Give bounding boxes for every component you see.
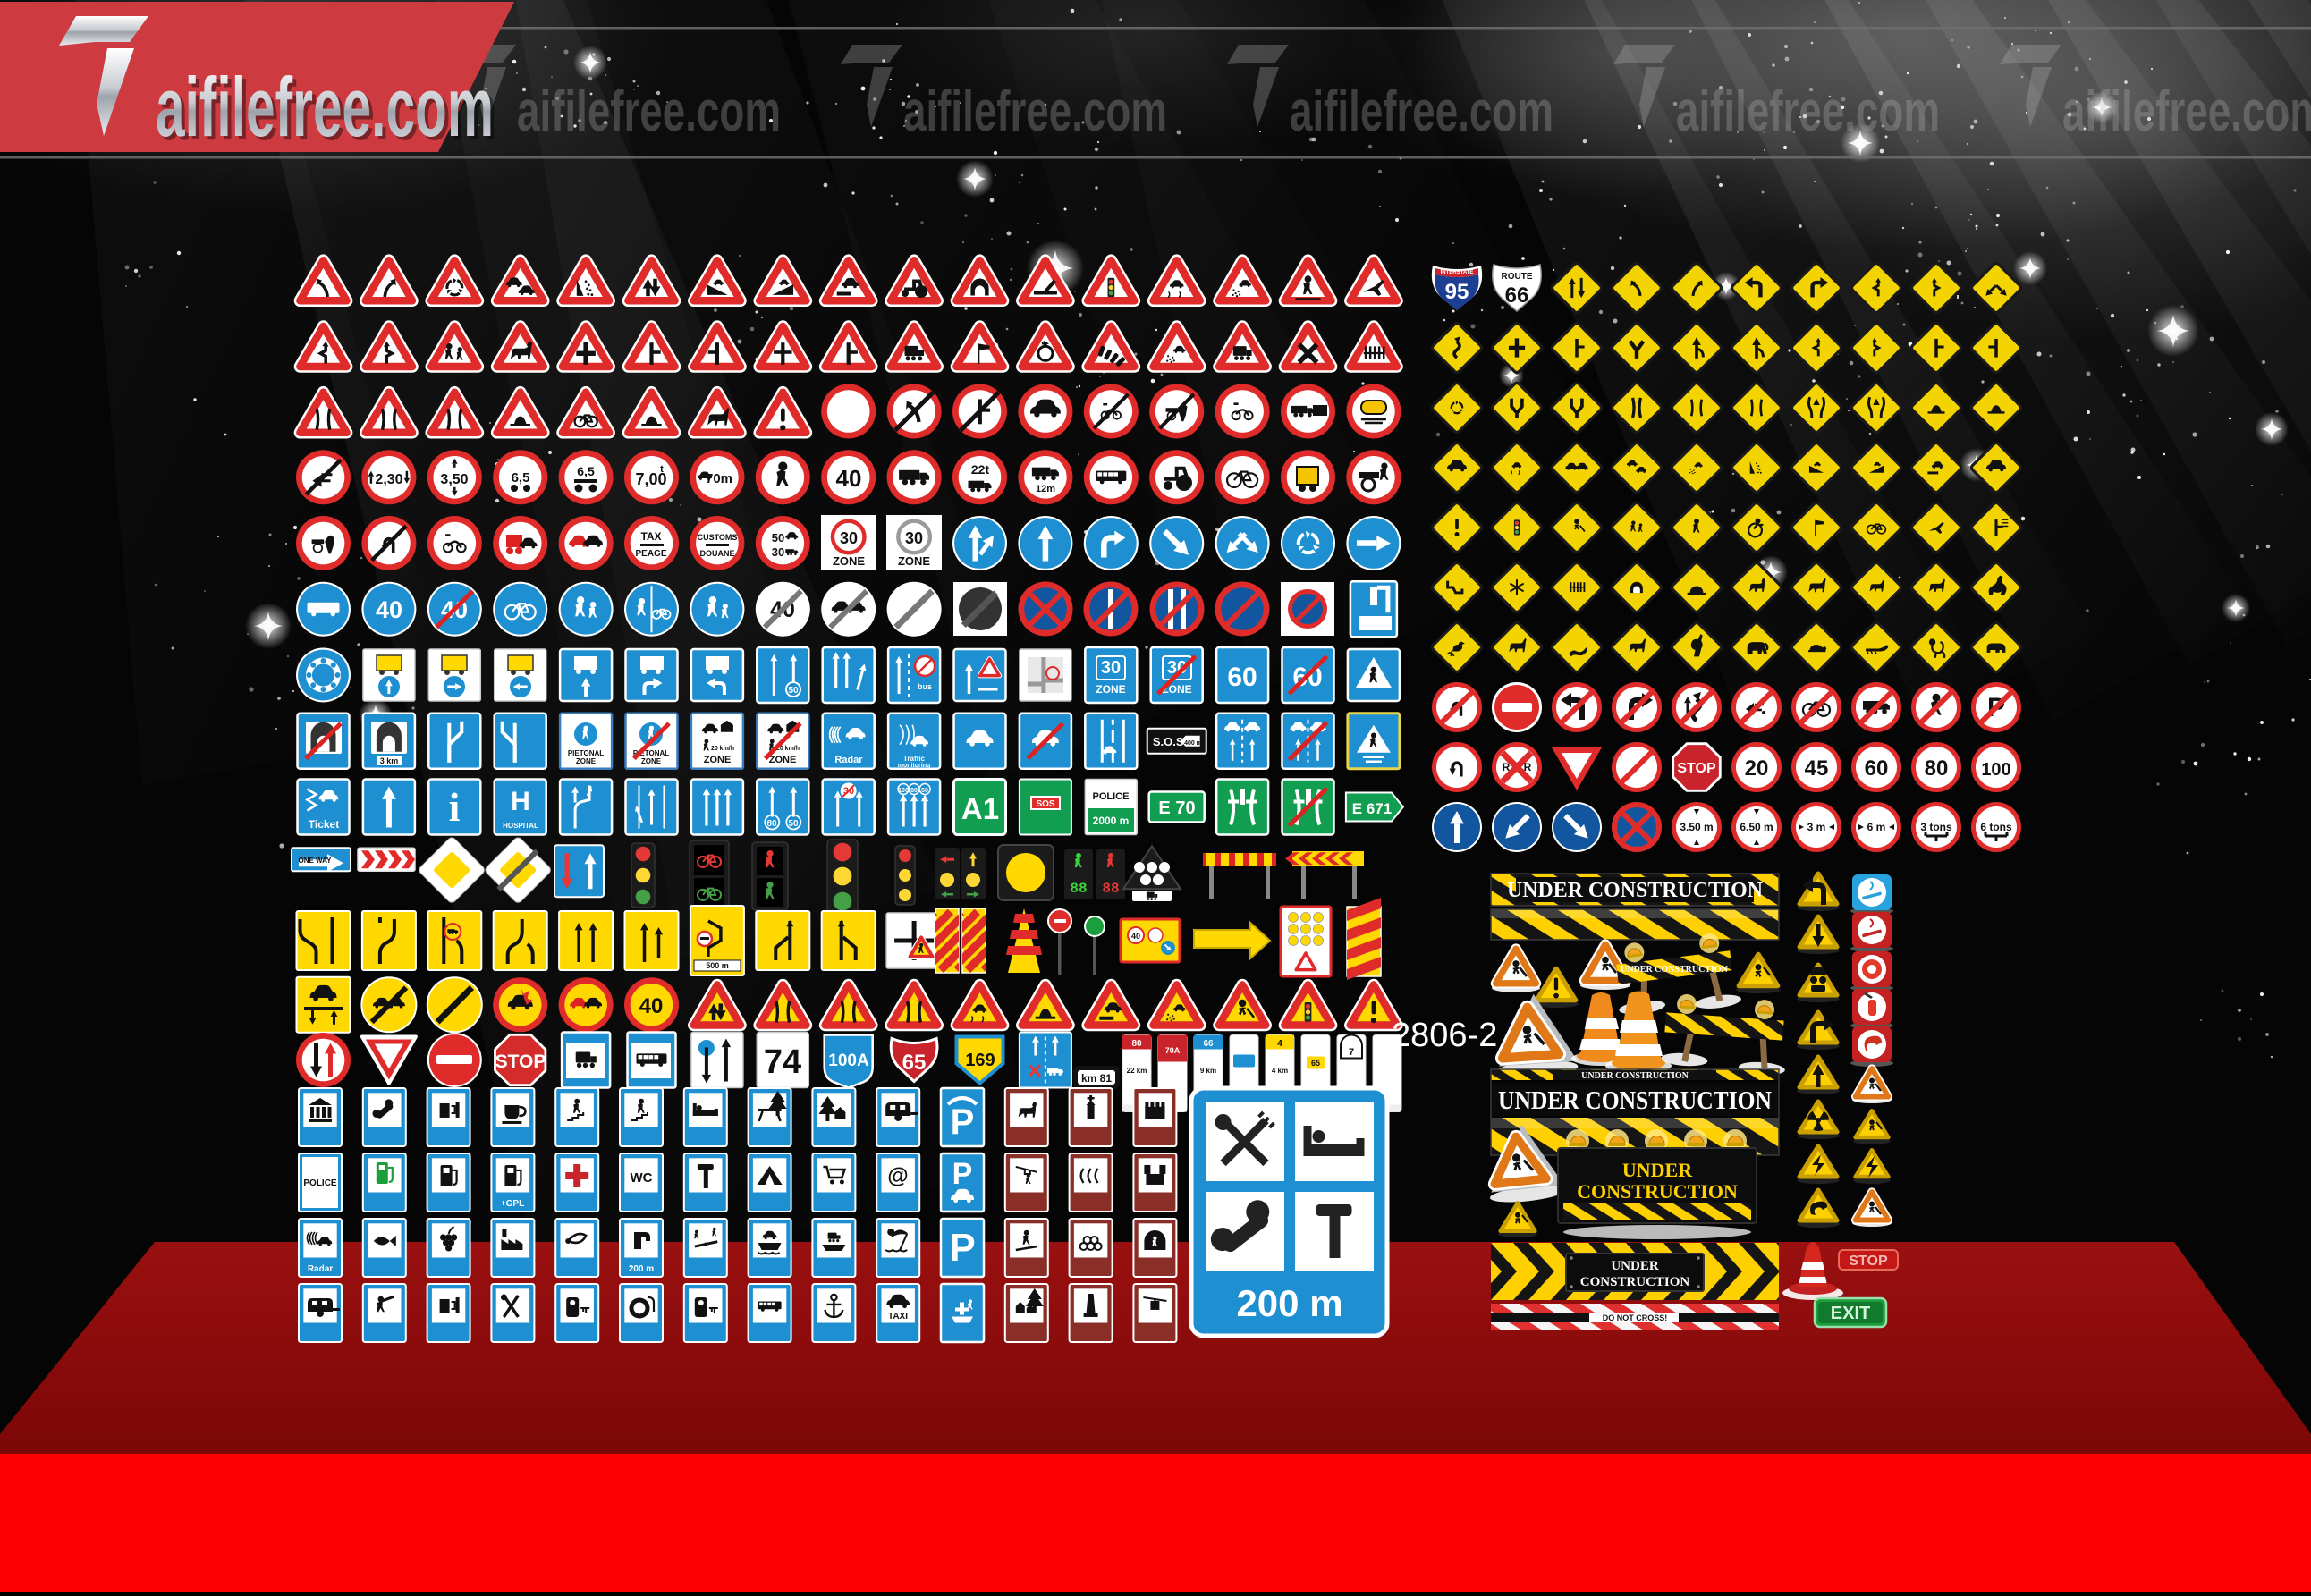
- svg-text:7: 7: [1349, 1047, 1354, 1058]
- svg-text:80: 80: [766, 819, 777, 829]
- svg-text:UNDER CONSTRUCTION: UNDER CONSTRUCTION: [1621, 965, 1729, 975]
- svg-text:6 tons: 6 tons: [1980, 821, 2012, 833]
- svg-text:40: 40: [639, 994, 664, 1018]
- svg-text:A1: A1: [961, 792, 999, 825]
- svg-text:30: 30: [840, 529, 858, 547]
- svg-text:CONSTRUCTION: CONSTRUCTION: [1577, 1180, 1738, 1203]
- svg-text:40: 40: [836, 465, 862, 492]
- svg-text:UNDER CONSTRUCTION: UNDER CONSTRUCTION: [1498, 1086, 1772, 1115]
- svg-text:169: 169: [965, 1051, 995, 1070]
- svg-text:4: 4: [1277, 1039, 1282, 1049]
- svg-text:SOS: SOS: [1036, 799, 1054, 809]
- svg-text:aifilefree.com: aifilefree.com: [1676, 79, 1940, 143]
- svg-text:STOP: STOP: [1677, 761, 1716, 776]
- svg-text:DO NOT CROSS!: DO NOT CROSS!: [1603, 1313, 1668, 1322]
- svg-text:P: P: [949, 1226, 975, 1270]
- svg-text:Radar: Radar: [834, 755, 863, 765]
- svg-text:65: 65: [1311, 1059, 1320, 1068]
- svg-text:6.50 m: 6.50 m: [1740, 821, 1773, 833]
- svg-text:R: R: [1503, 761, 1511, 773]
- svg-text:45: 45: [1805, 756, 1829, 781]
- svg-text:PIETONAL: PIETONAL: [568, 749, 604, 757]
- svg-text:TAXI: TAXI: [888, 1312, 908, 1322]
- svg-text:ZONE: ZONE: [576, 757, 597, 765]
- svg-text:2806-2: 2806-2: [1392, 1017, 1497, 1054]
- svg-text:22t: 22t: [971, 462, 990, 477]
- svg-text:P: P: [951, 1102, 975, 1142]
- svg-text:40: 40: [1131, 932, 1140, 941]
- svg-text:aifilefree.com: aifilefree.com: [2062, 79, 2311, 143]
- svg-text:UNDER: UNDER: [1611, 1259, 1659, 1273]
- svg-text:6,5: 6,5: [512, 470, 530, 486]
- svg-text:UNDER CONSTRUCTION: UNDER CONSTRUCTION: [1507, 879, 1764, 902]
- svg-text:DOUANE: DOUANE: [699, 549, 734, 558]
- svg-text:HOSPITAL: HOSPITAL: [503, 822, 538, 830]
- svg-text:Radar: Radar: [308, 1264, 333, 1274]
- svg-text:60: 60: [1227, 663, 1257, 692]
- svg-text:STOP: STOP: [1849, 1254, 1888, 1269]
- svg-text:20 km/h: 20 km/h: [711, 746, 734, 752]
- svg-text:R: R: [1524, 761, 1532, 773]
- svg-text:9 km: 9 km: [1200, 1067, 1216, 1075]
- svg-text:40: 40: [376, 596, 402, 623]
- svg-text:aifilefree.com: aifilefree.com: [1290, 79, 1553, 143]
- svg-text:20: 20: [1745, 756, 1769, 781]
- svg-text:80: 80: [1925, 756, 1949, 781]
- svg-text:6 m: 6 m: [1867, 821, 1886, 833]
- svg-text:3,50: 3,50: [440, 472, 468, 487]
- svg-text:Traffic: Traffic: [903, 755, 926, 763]
- svg-text:88: 88: [1070, 881, 1087, 897]
- svg-text:4 km: 4 km: [1272, 1067, 1288, 1075]
- svg-text:500 m: 500 m: [706, 961, 729, 970]
- svg-text:bus: bus: [918, 682, 932, 691]
- svg-text:ONE WAY: ONE WAY: [298, 857, 332, 865]
- svg-text:3 m: 3 m: [1807, 821, 1826, 833]
- svg-text:Ticket: Ticket: [309, 818, 339, 831]
- svg-text:TAX: TAX: [640, 530, 661, 543]
- svg-text:30: 30: [1101, 658, 1121, 678]
- svg-text:ZONE: ZONE: [769, 755, 797, 765]
- svg-text:UNDER CONSTRUCTION: UNDER CONSTRUCTION: [1581, 1071, 1689, 1081]
- svg-text:t: t: [660, 464, 664, 475]
- svg-text:12m: 12m: [1036, 484, 1055, 494]
- svg-text:EXIT: EXIT: [1831, 1304, 1870, 1323]
- svg-text:POLICE: POLICE: [1093, 791, 1130, 802]
- svg-text:60: 60: [1865, 756, 1889, 781]
- svg-text:ZONE: ZONE: [833, 554, 865, 568]
- svg-text:100: 100: [1981, 760, 2010, 780]
- svg-text:65: 65: [902, 1051, 927, 1075]
- svg-text:aifilefree.com: aifilefree.com: [517, 79, 781, 143]
- svg-text:ZONE: ZONE: [898, 554, 930, 568]
- svg-text:74: 74: [764, 1043, 801, 1081]
- svg-text:E 70: E 70: [1158, 798, 1195, 818]
- svg-text:PEAGE: PEAGE: [635, 549, 666, 559]
- svg-text:POLICE: POLICE: [303, 1178, 337, 1188]
- svg-text:km 81: km 81: [1081, 1072, 1112, 1085]
- svg-text:2000 m: 2000 m: [1093, 815, 1130, 827]
- svg-text:3 km: 3 km: [380, 756, 399, 765]
- svg-text:STOP: STOP: [495, 1051, 546, 1072]
- svg-text:ZONE: ZONE: [704, 755, 732, 765]
- svg-text:50: 50: [772, 531, 784, 545]
- svg-text:CUSTOMS: CUSTOMS: [698, 533, 738, 542]
- svg-text:100A: 100A: [828, 1051, 869, 1070]
- svg-text:22 km: 22 km: [1127, 1067, 1147, 1075]
- svg-text:INTERSTATE: INTERSTATE: [1441, 270, 1474, 275]
- svg-text:66: 66: [1203, 1039, 1214, 1049]
- svg-text:6,5: 6,5: [577, 464, 595, 478]
- svg-text:30: 30: [772, 545, 784, 559]
- svg-text:ZONE: ZONE: [1096, 683, 1125, 696]
- svg-text:2,30: 2,30: [375, 472, 402, 487]
- svg-text:80: 80: [910, 788, 918, 794]
- svg-text:aifilefree.com: aifilefree.com: [156, 60, 494, 154]
- svg-text:70A: 70A: [1165, 1046, 1181, 1055]
- svg-text:UNDER: UNDER: [1622, 1159, 1693, 1181]
- svg-text:+GPL: +GPL: [501, 1199, 524, 1209]
- svg-text:i: i: [449, 784, 461, 830]
- svg-text:aifilefree.com: aifilefree.com: [903, 79, 1167, 143]
- svg-text:ZONE: ZONE: [641, 757, 662, 765]
- svg-text:H: H: [511, 787, 530, 816]
- svg-text:3.50 m: 3.50 m: [1680, 821, 1713, 833]
- svg-text:50: 50: [788, 686, 799, 696]
- svg-text:monitoring: monitoring: [898, 763, 931, 769]
- svg-text:ROUTE: ROUTE: [1502, 272, 1533, 282]
- svg-text:200 m: 200 m: [1236, 1282, 1342, 1324]
- svg-text:80: 80: [1131, 1039, 1142, 1049]
- svg-text:200 m: 200 m: [629, 1264, 654, 1274]
- svg-text:50: 50: [921, 788, 928, 794]
- svg-text:3 tons: 3 tons: [1920, 821, 1952, 833]
- svg-text:66: 66: [1505, 283, 1529, 308]
- svg-text:WC: WC: [631, 1170, 653, 1186]
- svg-text:@: @: [887, 1164, 908, 1188]
- svg-text:CONSTRUCTION: CONSTRUCTION: [1580, 1275, 1690, 1289]
- svg-text:88: 88: [1102, 881, 1119, 897]
- svg-text:30: 30: [905, 529, 923, 547]
- svg-text:400 m: 400 m: [1184, 740, 1202, 747]
- svg-text:50: 50: [788, 819, 799, 829]
- svg-text:P: P: [952, 1157, 973, 1191]
- svg-text:E 671: E 671: [1352, 800, 1392, 817]
- svg-text:95: 95: [1445, 280, 1469, 304]
- svg-text:100: 100: [898, 788, 909, 794]
